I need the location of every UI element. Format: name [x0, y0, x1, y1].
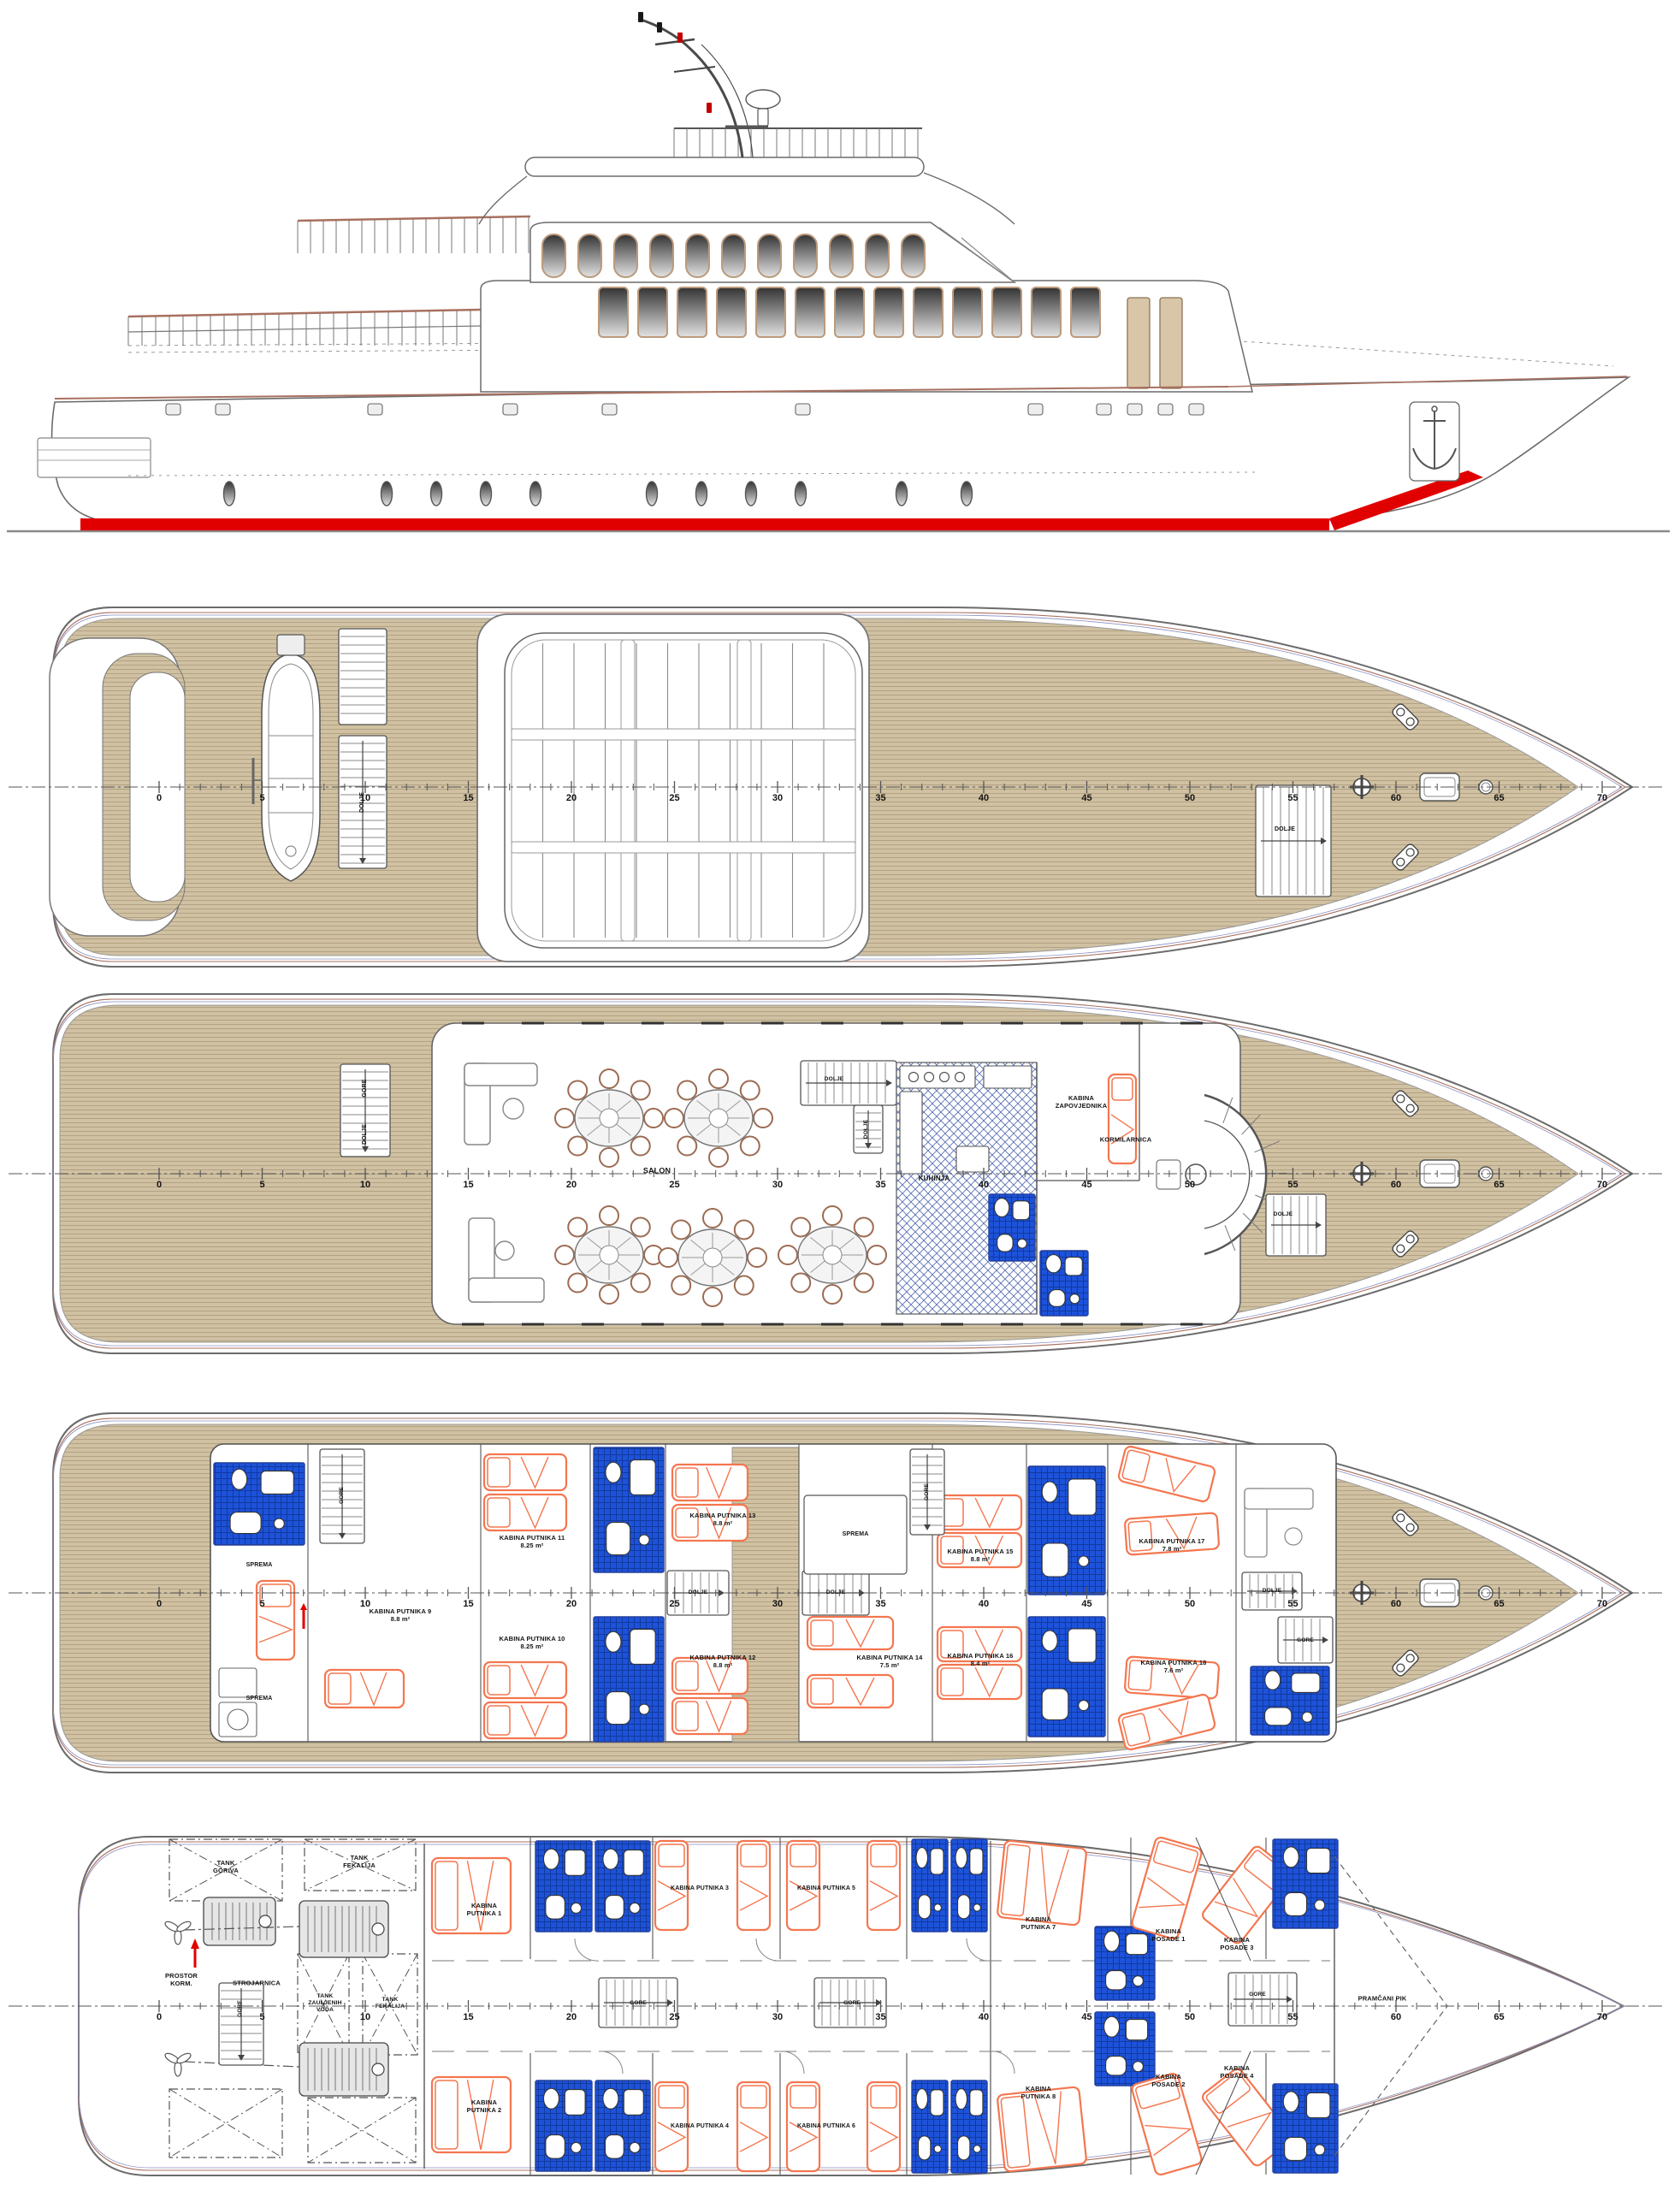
- plan-artwork: [0, 0, 1680, 2190]
- ship-general-arrangement: 0510152025303540455055606570DOLJEDOLJE05…: [0, 0, 1680, 2190]
